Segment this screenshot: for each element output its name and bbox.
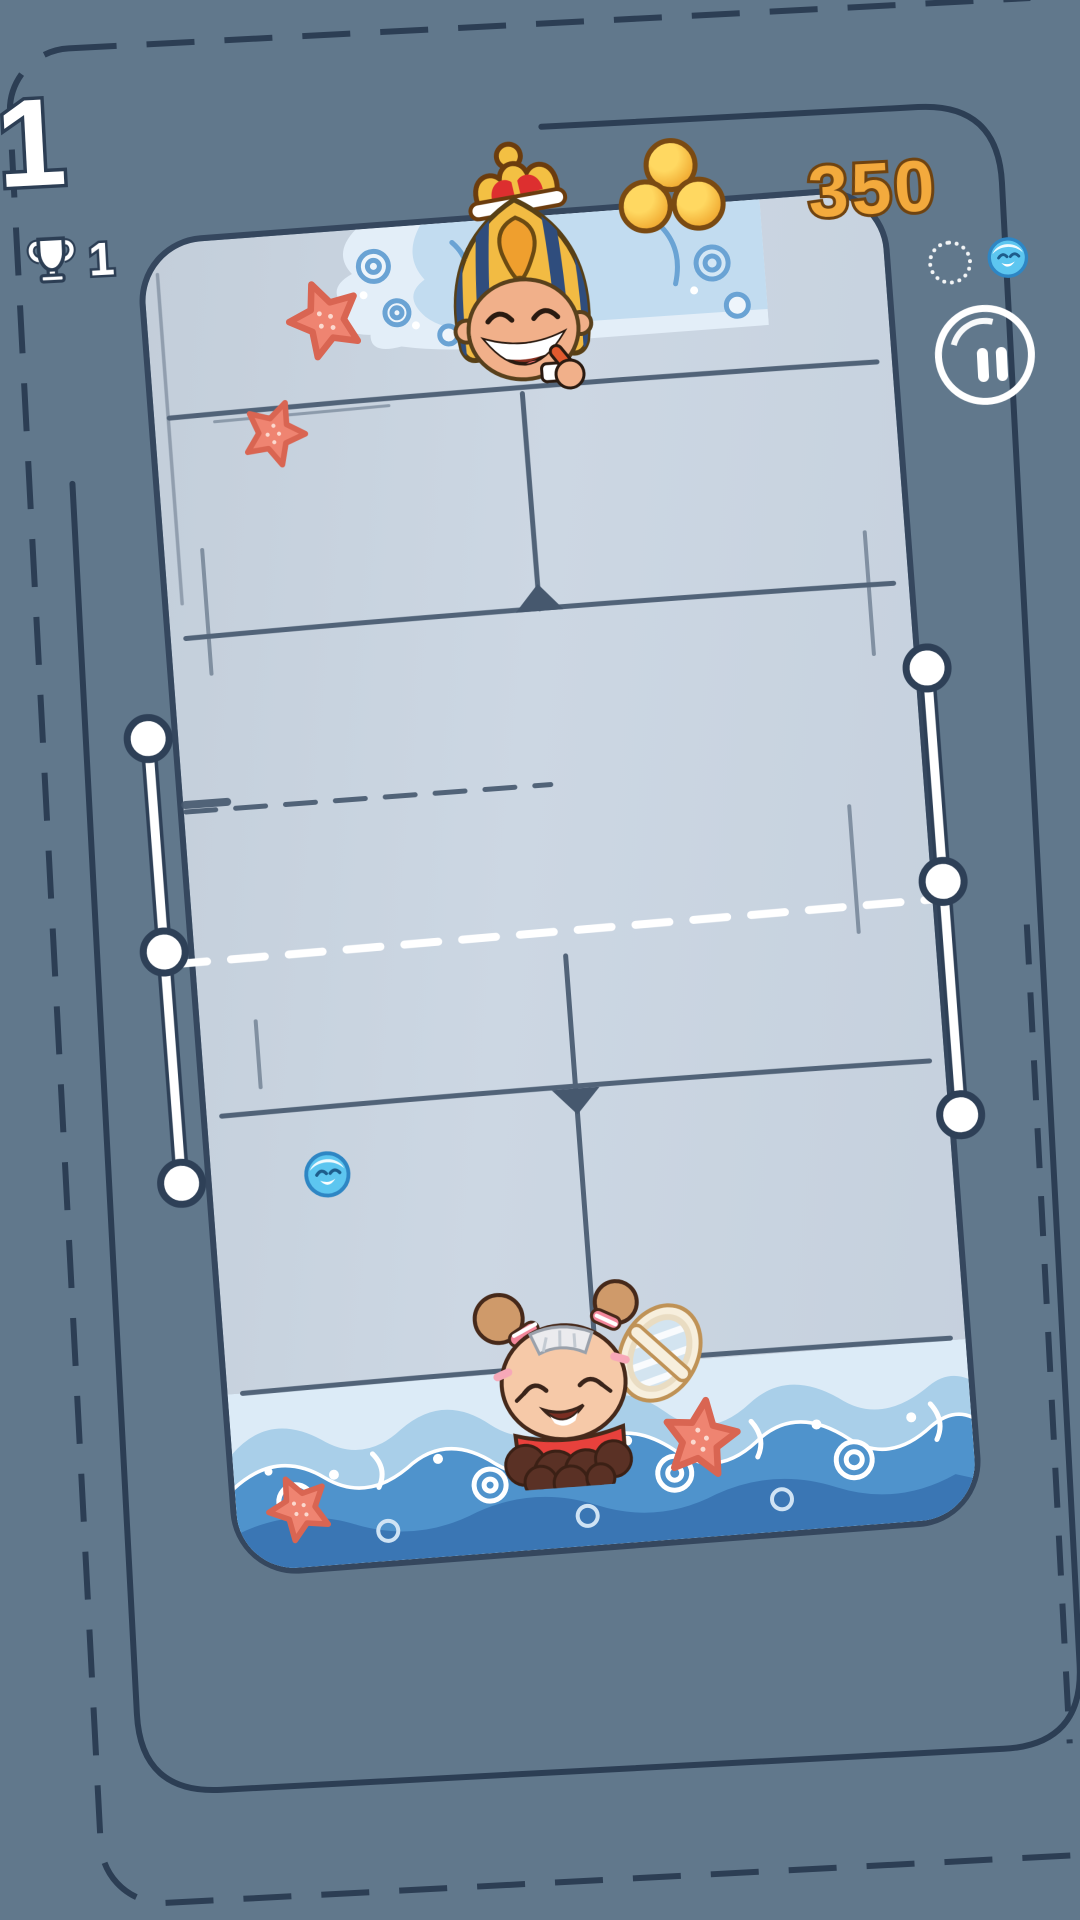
pause-icon bbox=[977, 348, 990, 383]
pharaoh-opponent bbox=[415, 133, 624, 402]
best-score-value: 1 bbox=[88, 235, 116, 282]
rotated-scene: 1 1 350 bbox=[0, 0, 1080, 1920]
girl-player bbox=[460, 1270, 715, 1494]
rally-slot-ball-icon bbox=[985, 234, 1031, 280]
best-score: 1 bbox=[25, 230, 148, 288]
level-number: 1 bbox=[0, 80, 69, 207]
pause-icon bbox=[996, 347, 1009, 382]
coins-icon bbox=[615, 135, 728, 239]
game-ball[interactable] bbox=[301, 1148, 355, 1202]
game-screen: 1 1 350 bbox=[0, 0, 1080, 1920]
trophy-icon bbox=[25, 233, 78, 286]
coin-count: 350 bbox=[806, 150, 939, 229]
game-court[interactable] bbox=[135, 184, 986, 1579]
